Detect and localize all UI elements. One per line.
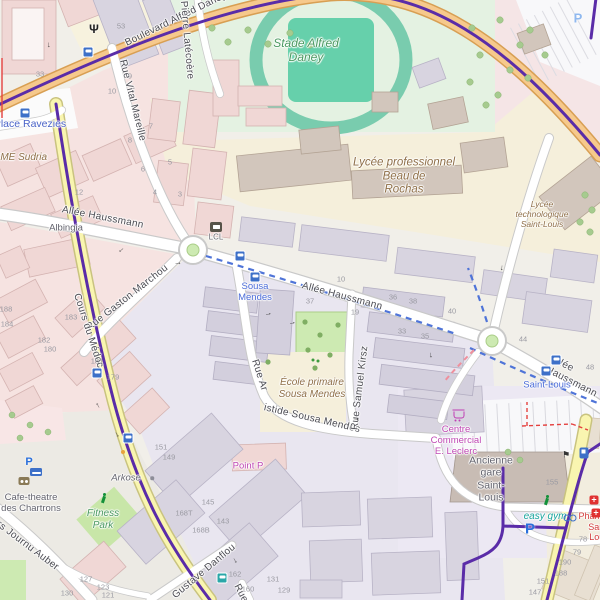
stadium-field <box>288 18 374 102</box>
map-base-layer <box>0 0 600 600</box>
map-canvas[interactable]: Boulevard Alfred DaneyPierre LatécoèreRu… <box>0 0 600 600</box>
